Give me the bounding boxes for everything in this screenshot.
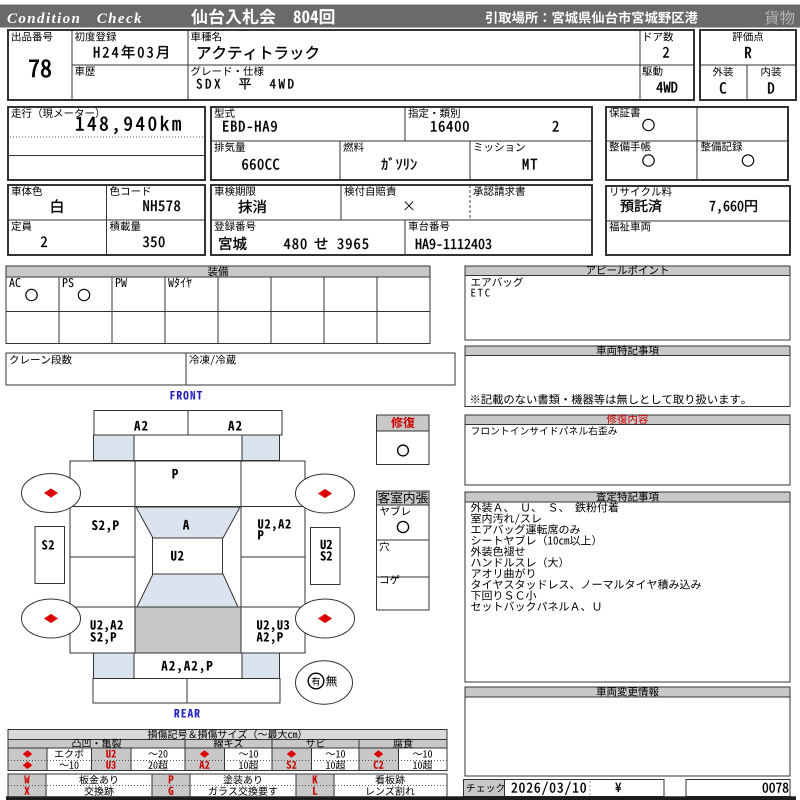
svg-text:Condition Check: Condition Check	[7, 11, 143, 27]
